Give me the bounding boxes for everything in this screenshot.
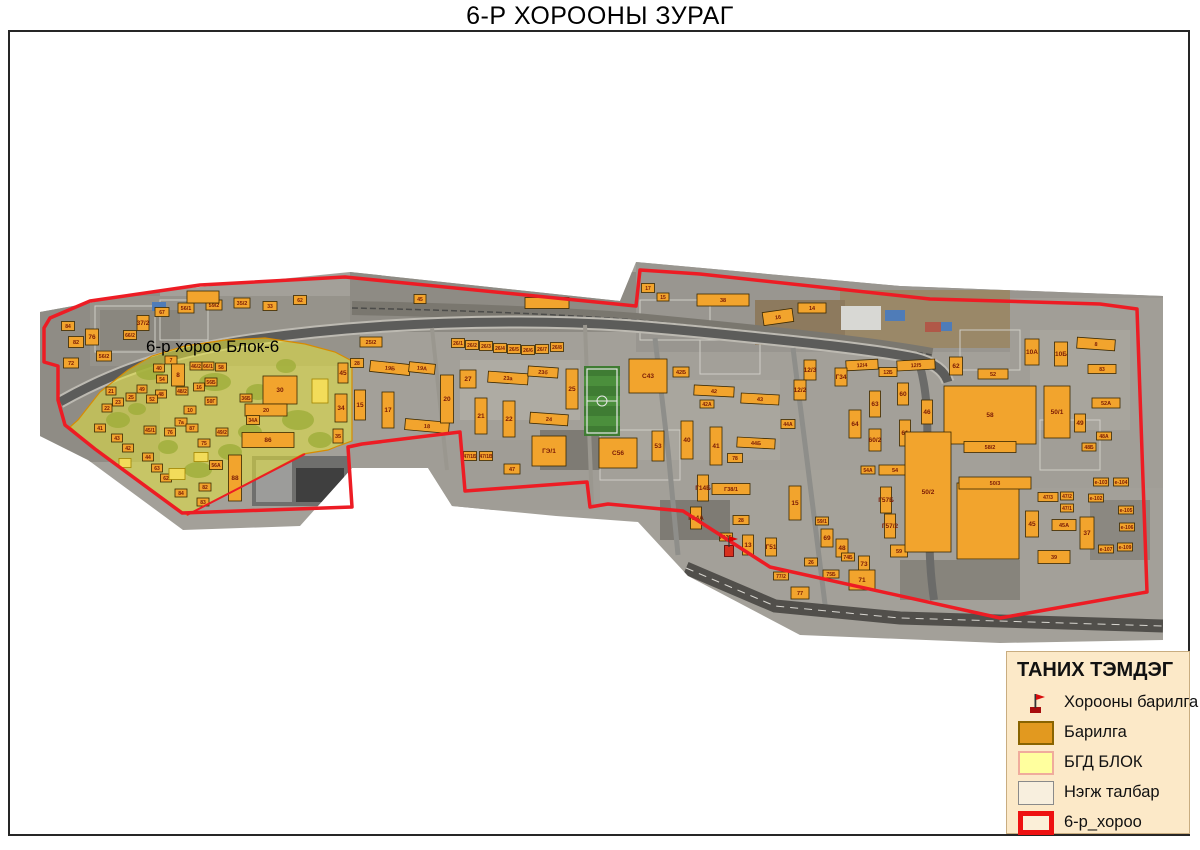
legend-item-parcel: Нэгж талбар (1015, 779, 1181, 806)
building-label: 45 (417, 297, 423, 303)
building-label: C56 (612, 450, 624, 457)
building: 52А (1092, 398, 1120, 408)
building: 58/2 (964, 442, 1016, 453)
building-label: 47/2 (1062, 494, 1072, 500)
building-label: 36Б (241, 396, 251, 402)
building-label: 56А (211, 463, 221, 469)
building: 50/1 (1044, 386, 1070, 438)
bgd-block-swatch (1018, 751, 1054, 775)
building-label: 48А (1099, 434, 1109, 440)
building-label: 49 (1076, 420, 1084, 427)
building-footprint (725, 546, 734, 557)
building-label: 40 (156, 366, 162, 372)
building-label: 13 (744, 542, 752, 549)
building: 66/1 (202, 362, 214, 370)
building: 45/1 (144, 426, 156, 434)
building: 76 (165, 428, 176, 436)
building: 77/2 (774, 572, 789, 580)
building: 26 (805, 558, 818, 566)
building: 23 (113, 398, 124, 406)
building-label: e-106 (1121, 525, 1134, 531)
building-label: 82 (202, 485, 208, 491)
building: Г34 (835, 368, 847, 386)
building: 52 (978, 369, 1008, 379)
building-label: 48 (158, 392, 164, 398)
building: 35/2 (234, 298, 250, 308)
building (169, 469, 185, 480)
building: 34А (247, 416, 260, 425)
building: 50Г (205, 397, 217, 405)
building-label: 60/2 (869, 437, 882, 444)
building-label: 56/2 (99, 354, 110, 360)
building-label: 66/2 (125, 333, 135, 339)
legend: ТАНИХ ТЭМДЭГ Хорооны барилга Барилга БГД… (1006, 651, 1190, 834)
building: 53 (652, 431, 664, 461)
building: 17 (642, 284, 655, 293)
building-label: 26/1 (453, 341, 463, 347)
legend-title: ТАНИХ ТЭМДЭГ (1017, 659, 1181, 682)
building: 44 (143, 453, 154, 461)
legend-label: Хорооны барилга (1064, 693, 1198, 712)
building-label: 73 (860, 561, 868, 568)
building-label: 40 (683, 437, 691, 444)
building-label: 45 (339, 370, 347, 377)
building-label: 52 (990, 372, 996, 378)
building: 54 (157, 375, 168, 383)
building-label: 62 (163, 476, 169, 482)
building (312, 379, 328, 403)
building-label: 47 (509, 467, 515, 473)
building-label: 75Б (826, 572, 836, 578)
building: 26/5 (508, 345, 521, 354)
building-label: 20 (263, 408, 269, 414)
building: 74Б (842, 553, 855, 561)
building-footprint (169, 469, 185, 480)
legend-item-khoroo-boundary: 6-р_хороо (1015, 809, 1181, 836)
building-label: 25/2 (366, 340, 377, 346)
building: 50/3 (959, 477, 1031, 489)
building-label: 12/2 (794, 387, 807, 394)
building-label: 50/1 (1051, 409, 1064, 416)
building: 44А (781, 420, 795, 429)
building-label: 58/2 (985, 445, 996, 451)
building-label: 14 (809, 306, 816, 312)
building-label: e-105 (1120, 508, 1133, 514)
building: 56Б (205, 378, 217, 386)
building-label: 58 (218, 365, 224, 371)
building: 56/2 (97, 351, 112, 361)
building-label: 10Б (1055, 351, 1067, 358)
building-label: 16 (775, 315, 782, 322)
building: 75Б (823, 570, 839, 578)
building-label: 21 (477, 413, 485, 420)
building: 26/4 (494, 344, 507, 353)
building (187, 291, 219, 303)
building-label: 69 (823, 535, 831, 542)
building-label: 16 (196, 385, 202, 391)
building: C43 (629, 359, 667, 393)
building (957, 483, 1019, 559)
building-label: 47/1 (1062, 506, 1072, 512)
building-label: 15 (791, 500, 799, 507)
building-label: 52 (149, 397, 155, 403)
khoroo-boundary-swatch (1018, 811, 1054, 835)
building: 43 (741, 393, 779, 405)
building: e-109 (1118, 543, 1133, 551)
building: 26/8 (551, 343, 564, 352)
building-label: 28 (738, 518, 744, 524)
block-label: 6-р хороо Блок-6 (146, 337, 279, 356)
building: 78 (728, 454, 743, 463)
building: 21 (106, 387, 116, 395)
building-label: 56Б (206, 380, 216, 386)
building-footprint (187, 291, 219, 303)
building-label: 34А (248, 418, 258, 424)
building: 26/2 (466, 341, 479, 350)
building-label: 58 (986, 412, 994, 419)
building: 12/2 (794, 380, 807, 400)
building-label: 26/6 (523, 348, 533, 354)
building: 62 (950, 357, 963, 375)
building-label: 26/3 (481, 344, 491, 350)
building: 84 (62, 322, 75, 331)
building-label: 35/2 (237, 301, 248, 307)
building: 10Б (1055, 342, 1068, 366)
building-label: 12/3 (804, 367, 817, 374)
building: 12/4 (846, 359, 878, 371)
building-label: 23б (538, 369, 549, 377)
building: 36Б (240, 394, 252, 402)
building: 62 (294, 296, 307, 305)
building: 28 (733, 516, 749, 525)
building: 23б (528, 366, 559, 378)
building: 26/3 (480, 342, 493, 351)
building-label: 38 (720, 298, 726, 304)
building: 30 (263, 376, 297, 404)
building-label: 7 (170, 358, 173, 364)
building-label: 12/5 (911, 363, 922, 370)
legend-item-khoroo-building: Хорооны барилга (1015, 689, 1181, 716)
building-label: 75 (201, 441, 207, 447)
building-label: 19Б (385, 365, 396, 372)
building-label: 50Г (207, 399, 216, 405)
building-label: 43 (757, 397, 763, 403)
building: 33 (263, 302, 277, 311)
building-label: 23 (115, 400, 121, 406)
building-label: 26/5 (509, 347, 519, 353)
building-label: 84 (178, 491, 184, 497)
building-label: 87 (189, 426, 195, 432)
building: 40 (681, 421, 693, 459)
building: 63 (870, 391, 881, 417)
building-swatch (1018, 721, 1054, 745)
building: 75 (198, 439, 210, 447)
building-label: 60 (899, 391, 907, 398)
building: 47/1В (479, 452, 493, 461)
building (194, 453, 208, 462)
building-label: Г34 (836, 374, 847, 381)
white-building (841, 306, 881, 330)
building-label: 44 (145, 455, 151, 461)
building: 45А (1052, 520, 1076, 531)
building: e-105 (1119, 506, 1134, 514)
map-document: { "title": "6-Р ХОРООНЫ ЗУРАГ", "map": {… (0, 0, 1200, 850)
building-label: 22 (505, 416, 513, 423)
building-label: 77 (797, 591, 803, 597)
building: 12Б (879, 368, 897, 377)
building-label: 59 (896, 549, 902, 555)
building: 46/2 (190, 362, 202, 370)
building-label: 21 (108, 389, 114, 395)
building-label: 48 (838, 545, 846, 552)
building-label: 42 (125, 446, 131, 452)
football-field (584, 366, 620, 436)
building-label: 49 (139, 387, 145, 393)
building-label: 39 (1051, 555, 1057, 561)
building: 10 (184, 406, 196, 414)
building: 20 (245, 404, 287, 416)
building: 37/2 (137, 316, 150, 331)
building-label: 8 (176, 372, 180, 379)
building-label: e-107 (1100, 547, 1113, 553)
building-label: 62 (952, 363, 960, 370)
building-label: 53 (654, 443, 662, 450)
building-label: 63 (154, 466, 160, 472)
building-label: 37/2 (137, 320, 150, 327)
building-label: 45/1 (145, 428, 155, 434)
building-label: 15 (660, 295, 666, 301)
building: 59/1 (816, 517, 829, 525)
building: e-107 (1099, 545, 1114, 553)
building-label: 84 (65, 324, 71, 330)
building: 35 (333, 429, 343, 443)
building-label: 15 (356, 402, 364, 409)
building: 21 (475, 398, 487, 434)
building: 64 (849, 410, 861, 438)
building: 45 (1026, 511, 1039, 537)
building: 14 (798, 303, 826, 313)
building: 42 (123, 444, 134, 452)
building-label: 43 (114, 436, 120, 442)
building-label: 19А (417, 365, 428, 372)
building: 60/2 (869, 429, 882, 451)
building-label: 48Б (1084, 445, 1094, 451)
building-label: 49/2 (217, 430, 227, 436)
building: 82 (199, 483, 211, 491)
building: Г14Б (695, 475, 711, 501)
building: 22 (503, 401, 515, 437)
building: 42Б (673, 367, 689, 377)
building-label: 41 (712, 443, 720, 450)
building-label: Г57/2 (882, 523, 899, 530)
building-label: 78 (732, 456, 738, 462)
building-label: 33 (267, 304, 273, 310)
building-label: 42Б (676, 370, 686, 376)
building: 15 (657, 293, 669, 301)
building: 49 (1075, 414, 1086, 432)
building-label: 54 (892, 468, 899, 474)
blue-roof (885, 310, 905, 321)
building: e-103 (1094, 478, 1109, 486)
building (725, 546, 734, 557)
building: 19А (409, 362, 436, 375)
building-label: 26/4 (495, 346, 505, 352)
building-label: 20 (443, 396, 451, 403)
building-label: 37 (1083, 530, 1091, 537)
building-label: 12Б (883, 370, 893, 376)
legend-label: БГД БЛОК (1064, 753, 1143, 772)
building: 38 (697, 294, 749, 306)
building: 87 (186, 424, 198, 432)
legend-label: Барилга (1064, 723, 1127, 742)
building: 48/2 (176, 387, 188, 395)
building: 46 (922, 400, 933, 424)
red-roof (925, 322, 941, 332)
building: 12/5 (897, 359, 935, 371)
building: 67 (155, 308, 169, 317)
legend-label: Нэгж талбар (1064, 783, 1160, 802)
building: 12/3 (804, 360, 817, 380)
building: 50/2 (905, 432, 951, 552)
building-label: C43 (642, 373, 654, 380)
building: 25/2 (360, 337, 382, 347)
building-label: e-109 (1119, 545, 1132, 551)
building: 20 (441, 375, 454, 423)
building-label: 67 (159, 310, 165, 316)
legend-label: 6-р_хороо (1064, 813, 1142, 832)
building-label: Г51 (766, 544, 777, 551)
building-label: 26 (808, 560, 814, 566)
building: Г51 (766, 538, 777, 556)
building-label: 54А (863, 468, 873, 474)
building: 24 (530, 412, 569, 426)
building: 52 (147, 395, 158, 403)
legend-item-bgd-block: БГД БЛОК (1015, 749, 1181, 776)
building-label: ГЭ/1 (542, 448, 556, 455)
building: 37 (1080, 517, 1094, 549)
building: 17 (382, 392, 394, 428)
building-label: 34 (337, 405, 345, 412)
building-label: 47/3 (1043, 495, 1053, 501)
building: 8 (172, 364, 185, 386)
building: 47/1Б (463, 452, 477, 461)
building-label: 82 (73, 340, 79, 346)
building: e-102 (1089, 494, 1104, 502)
building-label: 25 (128, 395, 134, 401)
building-label: 18 (424, 424, 431, 431)
building-label: e-103 (1095, 480, 1108, 486)
building: 77 (791, 587, 809, 599)
building: 40 (154, 364, 165, 372)
building-label: 45 (1028, 521, 1036, 528)
building-label: 10А (1026, 349, 1038, 356)
building: 15 (355, 390, 366, 420)
building-label: 64 (851, 421, 859, 428)
building-label: 86 (264, 437, 272, 444)
building: 42 (694, 385, 734, 397)
building: 7 (165, 356, 177, 364)
building-label: 59/1 (817, 519, 827, 525)
building-label: 17 (645, 286, 651, 292)
building-label: 48/2 (177, 389, 187, 395)
building-label: 74Б (843, 555, 853, 561)
building-label: 45А (1059, 523, 1069, 529)
building-label: 26/8 (552, 345, 562, 351)
building: 26/7 (536, 345, 549, 354)
building-footprint (194, 453, 208, 462)
building: 47 (504, 464, 520, 474)
building-label: 83 (1099, 367, 1105, 373)
building-label: Г57Б (878, 497, 894, 504)
building: 47/3 (1038, 493, 1058, 502)
building-label: 47/1В (479, 454, 493, 460)
building-label: 17 (384, 407, 392, 414)
building: 49 (137, 385, 147, 393)
building: 86 (242, 433, 294, 448)
building-label: 25 (568, 386, 576, 393)
building-label: 76 (88, 334, 96, 341)
building: 72 (64, 358, 79, 368)
building: 49/2 (216, 428, 228, 436)
building: 56/1 (178, 303, 194, 313)
building-label: e-104 (1115, 480, 1128, 486)
building: 41 (710, 427, 722, 465)
building-label: 26/2 (467, 343, 477, 349)
building: 26/1 (452, 339, 465, 348)
building: 26/6 (522, 346, 535, 355)
building: 28 (351, 359, 364, 368)
building-label: 50/2 (922, 489, 935, 496)
building: 56А (210, 461, 223, 470)
building: 66/2 (124, 331, 137, 340)
building-label: 52А (1101, 401, 1111, 407)
building: 69 (821, 529, 833, 547)
building-label: 63 (871, 401, 879, 408)
legend-item-building: Барилга (1015, 719, 1181, 746)
building-label: 46/2 (191, 364, 201, 370)
building-label: 8 (1094, 342, 1097, 348)
building-label: 66/1 (203, 364, 213, 370)
building-label: 44Б (751, 441, 761, 448)
building-label: Г14Б (695, 485, 711, 492)
building-label: 54 (159, 377, 165, 383)
building-label: 35 (335, 434, 341, 440)
building-label: 59/2 (209, 303, 220, 309)
building: 60 (898, 383, 909, 405)
building-label: 72 (68, 361, 74, 367)
building-label: 12/4 (857, 363, 869, 370)
building-label: 44А (783, 422, 793, 428)
building: 84 (175, 489, 187, 497)
building: 34 (335, 394, 347, 422)
building-label: 28 (354, 361, 360, 367)
building: 41 (95, 424, 106, 432)
building-label: 76 (167, 430, 173, 436)
building-label: 41 (97, 426, 103, 432)
building: 47/2 (1061, 492, 1074, 500)
building: 48Б (1082, 443, 1096, 451)
building: 22 (102, 404, 112, 412)
building-label: 47/1Б (463, 454, 477, 460)
building: e-104 (1114, 478, 1129, 486)
building-label: 62 (297, 298, 303, 304)
building: 42А (700, 400, 714, 408)
building-label: 22 (104, 406, 110, 412)
building: 7а (175, 418, 187, 426)
building: 54А (861, 466, 875, 474)
building: C56 (599, 438, 637, 468)
building-footprint (957, 483, 1019, 559)
